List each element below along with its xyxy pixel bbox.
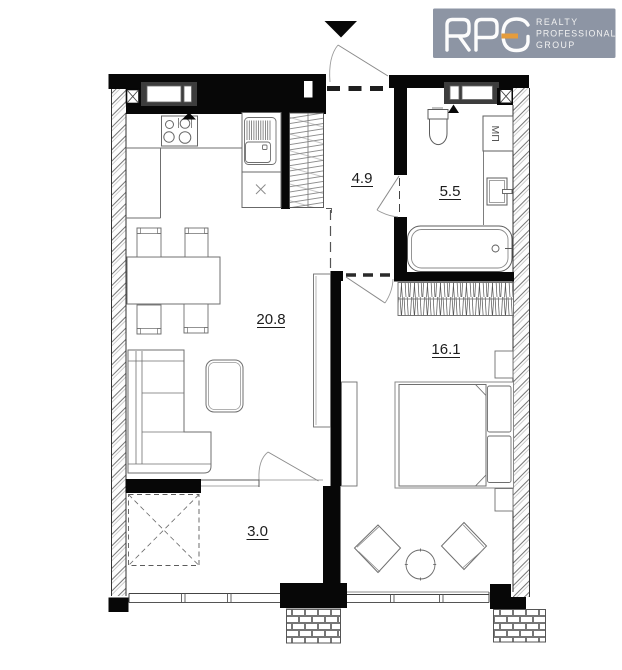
svg-text:20.8: 20.8 (256, 311, 285, 328)
svg-text:GROUP: GROUP (536, 40, 576, 50)
svg-text:3.0: 3.0 (247, 523, 268, 540)
svg-text:REALTY: REALTY (536, 17, 579, 27)
svg-text:4.9: 4.9 (352, 170, 373, 187)
svg-text:16.1: 16.1 (431, 341, 460, 358)
svg-text:5.5: 5.5 (440, 183, 461, 200)
svg-text:МП: МП (489, 126, 501, 142)
svg-text:PROFESSIONAL: PROFESSIONAL (536, 29, 616, 39)
